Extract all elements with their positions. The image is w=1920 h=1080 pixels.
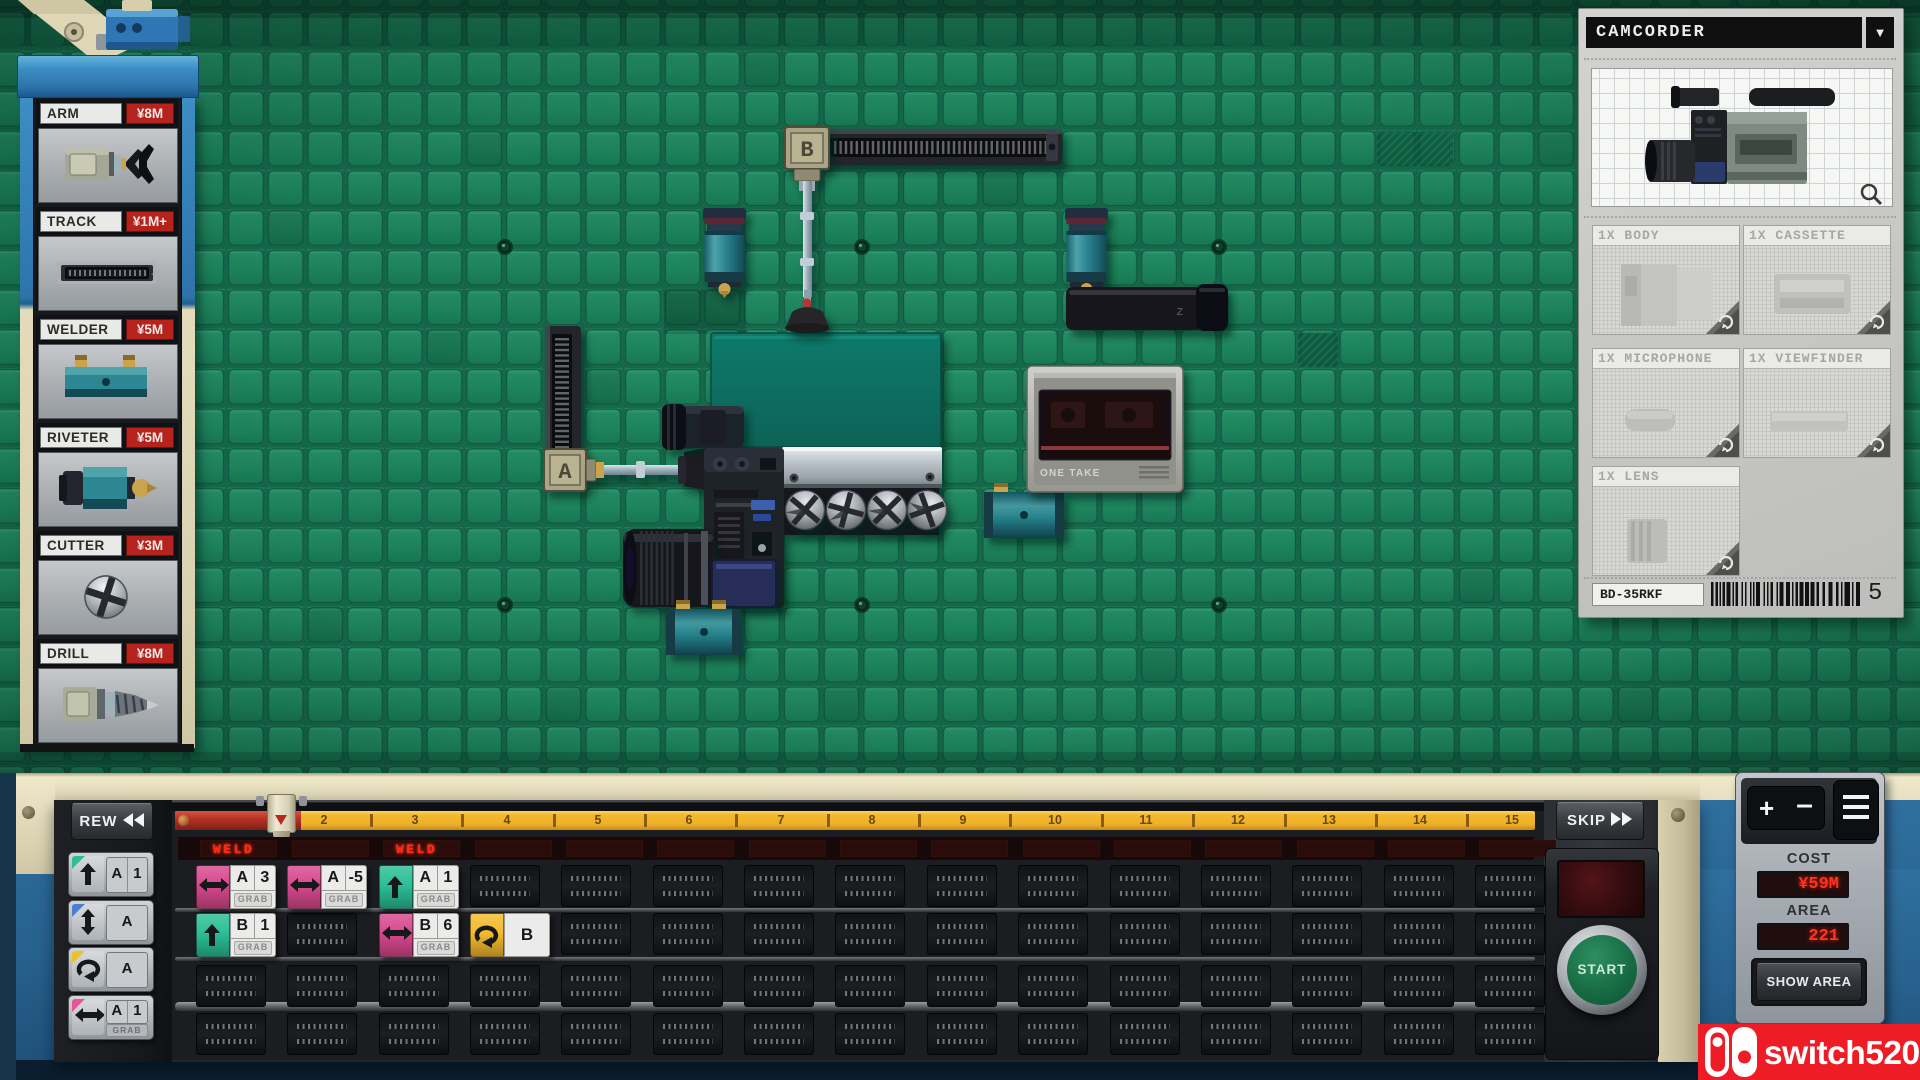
svg-text:B: B (800, 138, 813, 163)
svg-text:A: A (558, 460, 572, 485)
svg-text:ONE TAKE: ONE TAKE (1040, 468, 1101, 479)
svg-text:-: - (55, 268, 62, 282)
svg-text:z: z (1176, 304, 1184, 319)
svg-text:+: + (151, 268, 158, 282)
